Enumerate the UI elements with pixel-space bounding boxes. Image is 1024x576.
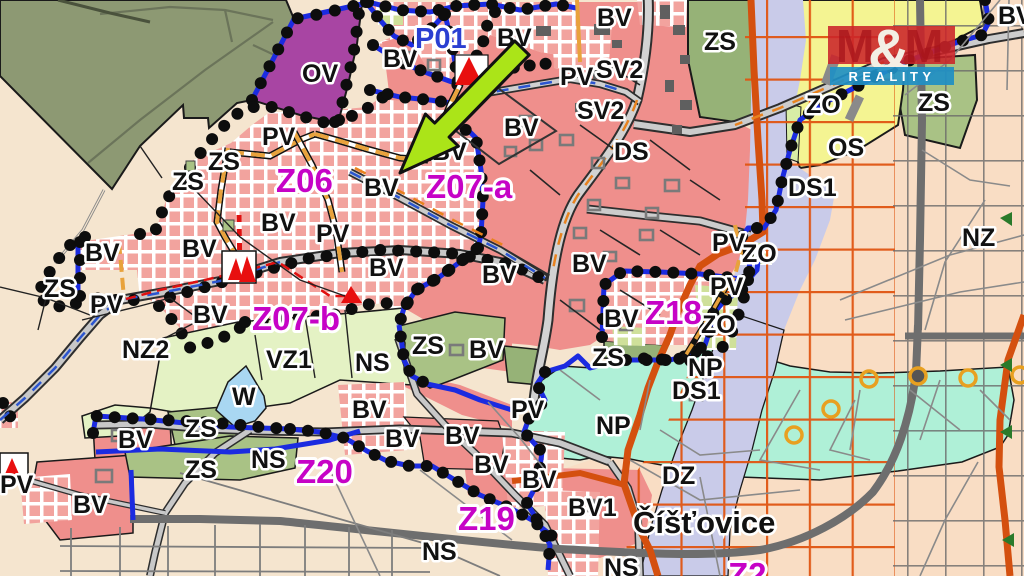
svg-text:BV: BV bbox=[369, 254, 404, 282]
svg-text:NP: NP bbox=[596, 412, 631, 440]
svg-text:NS: NS bbox=[251, 446, 286, 474]
svg-text:ZO: ZO bbox=[701, 311, 736, 339]
svg-text:Z06: Z06 bbox=[276, 162, 333, 199]
svg-text:Z18: Z18 bbox=[645, 294, 702, 331]
svg-text:BV: BV bbox=[469, 336, 504, 364]
svg-text:PV: PV bbox=[710, 273, 744, 301]
svg-text:NZ2: NZ2 bbox=[122, 336, 169, 364]
svg-text:PV: PV bbox=[262, 123, 296, 151]
svg-text:DZ: DZ bbox=[662, 462, 695, 490]
svg-text:W: W bbox=[232, 383, 256, 411]
svg-text:M: M bbox=[905, 20, 943, 72]
svg-text:REALITY: REALITY bbox=[848, 69, 935, 84]
svg-text:BV: BV bbox=[85, 239, 120, 267]
svg-text:VZ1: VZ1 bbox=[266, 346, 312, 374]
svg-text:BV: BV bbox=[572, 250, 607, 278]
svg-text:BV: BV bbox=[352, 396, 387, 424]
svg-text:NZ: NZ bbox=[962, 224, 995, 252]
svg-text:BV: BV bbox=[522, 466, 557, 494]
svg-text:BV: BV bbox=[482, 261, 517, 289]
svg-text:BV: BV bbox=[118, 426, 153, 454]
svg-text:BV: BV bbox=[445, 422, 480, 450]
svg-text:PV: PV bbox=[90, 291, 124, 319]
svg-text:ZS: ZS bbox=[704, 28, 736, 56]
svg-text:ZO: ZO bbox=[806, 91, 841, 119]
svg-text:ZS: ZS bbox=[185, 456, 217, 484]
svg-text:BV: BV bbox=[385, 425, 420, 453]
svg-text:SV2: SV2 bbox=[596, 56, 643, 84]
svg-text:Z07-b: Z07-b bbox=[252, 300, 340, 337]
svg-text:Číšťovice: Číšťovice bbox=[633, 504, 775, 540]
svg-text:ZS: ZS bbox=[918, 89, 950, 117]
svg-text:PV: PV bbox=[316, 220, 350, 248]
svg-text:BV: BV bbox=[474, 451, 509, 479]
svg-text:PV: PV bbox=[560, 63, 594, 91]
svg-text:NS: NS bbox=[355, 349, 390, 377]
svg-text:ZS: ZS bbox=[592, 344, 624, 372]
svg-text:SV2: SV2 bbox=[577, 97, 624, 125]
svg-text:BV: BV bbox=[597, 4, 632, 32]
svg-text:ZS: ZS bbox=[185, 415, 217, 443]
svg-text:ZO: ZO bbox=[742, 240, 777, 268]
svg-text:BV: BV bbox=[383, 45, 418, 73]
svg-text:Z07-a: Z07-a bbox=[426, 168, 513, 205]
svg-text:ZS: ZS bbox=[208, 148, 240, 176]
svg-text:BV: BV bbox=[182, 235, 217, 263]
svg-text:OS: OS bbox=[828, 134, 864, 162]
svg-text:BV: BV bbox=[998, 2, 1024, 30]
svg-text:BV: BV bbox=[193, 301, 228, 329]
svg-text:BV: BV bbox=[504, 114, 539, 142]
svg-text:Z20: Z20 bbox=[296, 453, 353, 490]
svg-text:DS1: DS1 bbox=[672, 377, 721, 405]
svg-text:DS1: DS1 bbox=[788, 174, 837, 202]
svg-text:ZS: ZS bbox=[172, 168, 204, 196]
svg-text:BV: BV bbox=[73, 491, 108, 519]
svg-text:ZS: ZS bbox=[44, 275, 76, 303]
svg-text:BV: BV bbox=[604, 305, 639, 333]
svg-text:OV: OV bbox=[302, 60, 338, 88]
svg-text:BV1: BV1 bbox=[568, 494, 617, 522]
svg-text:ZS: ZS bbox=[412, 332, 444, 360]
svg-text:Z19: Z19 bbox=[458, 500, 515, 537]
svg-text:PV: PV bbox=[0, 471, 34, 499]
svg-text:PV: PV bbox=[511, 396, 545, 424]
svg-text:PV: PV bbox=[712, 229, 746, 257]
svg-text:BV: BV bbox=[261, 209, 296, 237]
svg-text:NS: NS bbox=[422, 538, 457, 566]
svg-text:Z2: Z2 bbox=[728, 556, 767, 576]
svg-text:NS: NS bbox=[604, 554, 639, 576]
svg-text:DS: DS bbox=[614, 138, 649, 166]
svg-text:P01: P01 bbox=[415, 23, 467, 55]
svg-text:BV: BV bbox=[364, 174, 399, 202]
